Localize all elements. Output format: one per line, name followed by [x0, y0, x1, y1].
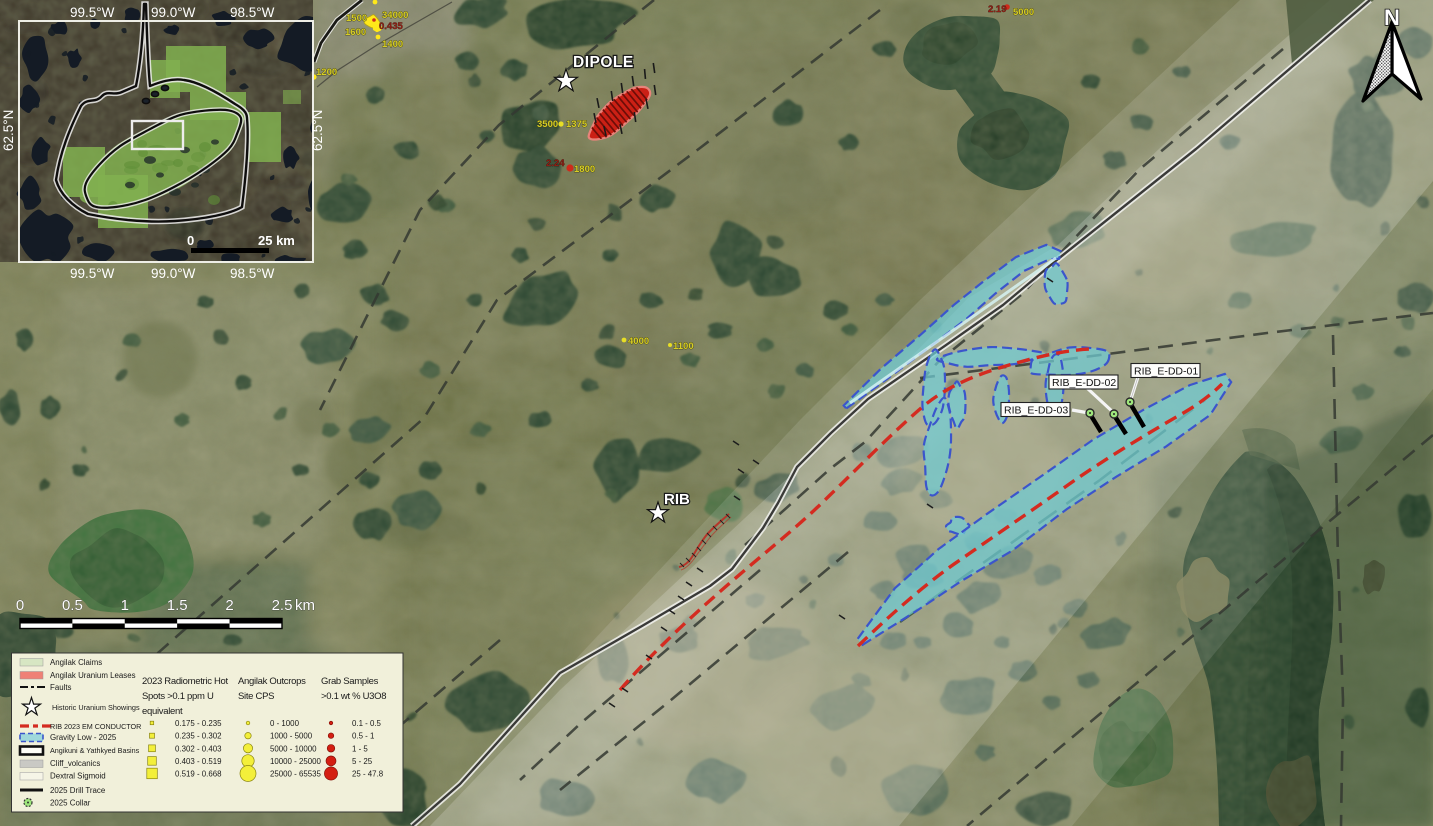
- svg-text:99.5°W: 99.5°W: [70, 266, 115, 281]
- svg-text:5000 - 10000: 5000 - 10000: [270, 744, 317, 753]
- svg-text:1600: 1600: [345, 27, 366, 38]
- svg-text:0 - 1000: 0 - 1000: [270, 719, 300, 728]
- svg-text:99.5°W: 99.5°W: [70, 5, 115, 20]
- svg-text:Historic Uranium Showings: Historic Uranium Showings: [52, 703, 140, 712]
- svg-text:DIPOLE: DIPOLE: [573, 54, 634, 71]
- svg-text:0: 0: [16, 597, 24, 614]
- svg-text:N: N: [1384, 5, 1400, 30]
- svg-text:0.5 - 1: 0.5 - 1: [352, 732, 374, 741]
- svg-text:Angikuni & Yathkyed Basins: Angikuni & Yathkyed Basins: [50, 746, 140, 755]
- svg-text:0.435: 0.435: [379, 21, 403, 32]
- svg-text:1000 - 5000: 1000 - 5000: [270, 732, 313, 741]
- svg-text:RIB_E-DD-02: RIB_E-DD-02: [1052, 377, 1116, 389]
- svg-text:1800: 1800: [574, 164, 595, 175]
- svg-text:Gravity Low - 2025: Gravity Low - 2025: [50, 733, 117, 742]
- svg-text:2023 Radiometric Hot: 2023 Radiometric Hot: [142, 676, 229, 687]
- svg-text:Angilak Claims: Angilak Claims: [50, 658, 102, 667]
- svg-text:25 - 47.8: 25 - 47.8: [352, 770, 384, 779]
- svg-text:2.5: 2.5: [272, 597, 293, 614]
- svg-text:1100: 1100: [673, 341, 694, 352]
- svg-text:4000: 4000: [628, 336, 649, 347]
- svg-text:62.5°N: 62.5°N: [310, 110, 325, 151]
- svg-text:2.24: 2.24: [546, 158, 565, 169]
- svg-text:0: 0: [187, 233, 194, 248]
- svg-text:25000 - 65535: 25000 - 65535: [270, 770, 322, 779]
- svg-text:RIB: RIB: [664, 491, 690, 508]
- svg-text:34000: 34000: [382, 10, 408, 21]
- svg-text:98.5°W: 98.5°W: [230, 5, 275, 20]
- svg-text:99.0°W: 99.0°W: [151, 266, 196, 281]
- svg-text:equivalent: equivalent: [142, 706, 183, 717]
- svg-text:98.5°W: 98.5°W: [230, 266, 275, 281]
- svg-text:62.5°N: 62.5°N: [1, 110, 16, 151]
- svg-text:1: 1: [121, 597, 129, 614]
- svg-text:0.519 - 0.668: 0.519 - 0.668: [175, 770, 222, 779]
- svg-text:1375: 1375: [566, 119, 588, 130]
- svg-text:2: 2: [225, 597, 233, 614]
- svg-text:Grab Samples: Grab Samples: [321, 676, 379, 687]
- svg-text:5 - 25: 5 - 25: [352, 757, 373, 766]
- svg-text:2025 Drill Trace: 2025 Drill Trace: [50, 786, 106, 795]
- svg-text:0.1 - 0.5: 0.1 - 0.5: [352, 719, 382, 728]
- svg-text:25 km: 25 km: [258, 233, 295, 248]
- svg-text:Dextral Sigmoid: Dextral Sigmoid: [50, 772, 106, 781]
- svg-text:1 - 5: 1 - 5: [352, 744, 368, 753]
- svg-text:0.403 - 0.519: 0.403 - 0.519: [175, 757, 222, 766]
- svg-text:km: km: [295, 597, 315, 614]
- svg-text:1500: 1500: [346, 13, 367, 24]
- svg-text:Site CPS: Site CPS: [238, 691, 274, 702]
- svg-text:1200: 1200: [316, 67, 337, 78]
- svg-text:2.19: 2.19: [988, 4, 1007, 15]
- svg-text:2025 Collar: 2025 Collar: [50, 799, 91, 808]
- svg-text:0.175 - 0.235: 0.175 - 0.235: [175, 719, 222, 728]
- svg-text:0.302 - 0.403: 0.302 - 0.403: [175, 744, 222, 753]
- svg-text:RIB_E-DD-01: RIB_E-DD-01: [1134, 366, 1198, 378]
- svg-text:Faults: Faults: [50, 683, 72, 692]
- svg-text:99.0°W: 99.0°W: [151, 5, 196, 20]
- svg-text:RIB 2023 EM CONDUCTOR: RIB 2023 EM CONDUCTOR: [50, 722, 141, 731]
- svg-text:RIB_E-DD-03: RIB_E-DD-03: [1004, 405, 1068, 417]
- svg-text:1.5: 1.5: [167, 597, 188, 614]
- svg-text:3500: 3500: [537, 119, 558, 130]
- svg-text:Angilak Uranium Leases: Angilak Uranium Leases: [50, 671, 136, 680]
- svg-text:1400: 1400: [382, 39, 403, 50]
- svg-text:Spots >0.1 ppm U: Spots >0.1 ppm U: [142, 691, 214, 702]
- svg-text:0.235 - 0.302: 0.235 - 0.302: [175, 732, 222, 741]
- svg-text:0.5: 0.5: [62, 597, 83, 614]
- svg-text:>0.1 wt % U3O8: >0.1 wt % U3O8: [321, 691, 386, 702]
- svg-text:10000 - 25000: 10000 - 25000: [270, 757, 322, 766]
- svg-text:Cliff_volcanics: Cliff_volcanics: [50, 759, 100, 768]
- svg-text:5000: 5000: [1013, 7, 1034, 18]
- svg-text:Angilak Outcrops: Angilak Outcrops: [238, 676, 306, 687]
